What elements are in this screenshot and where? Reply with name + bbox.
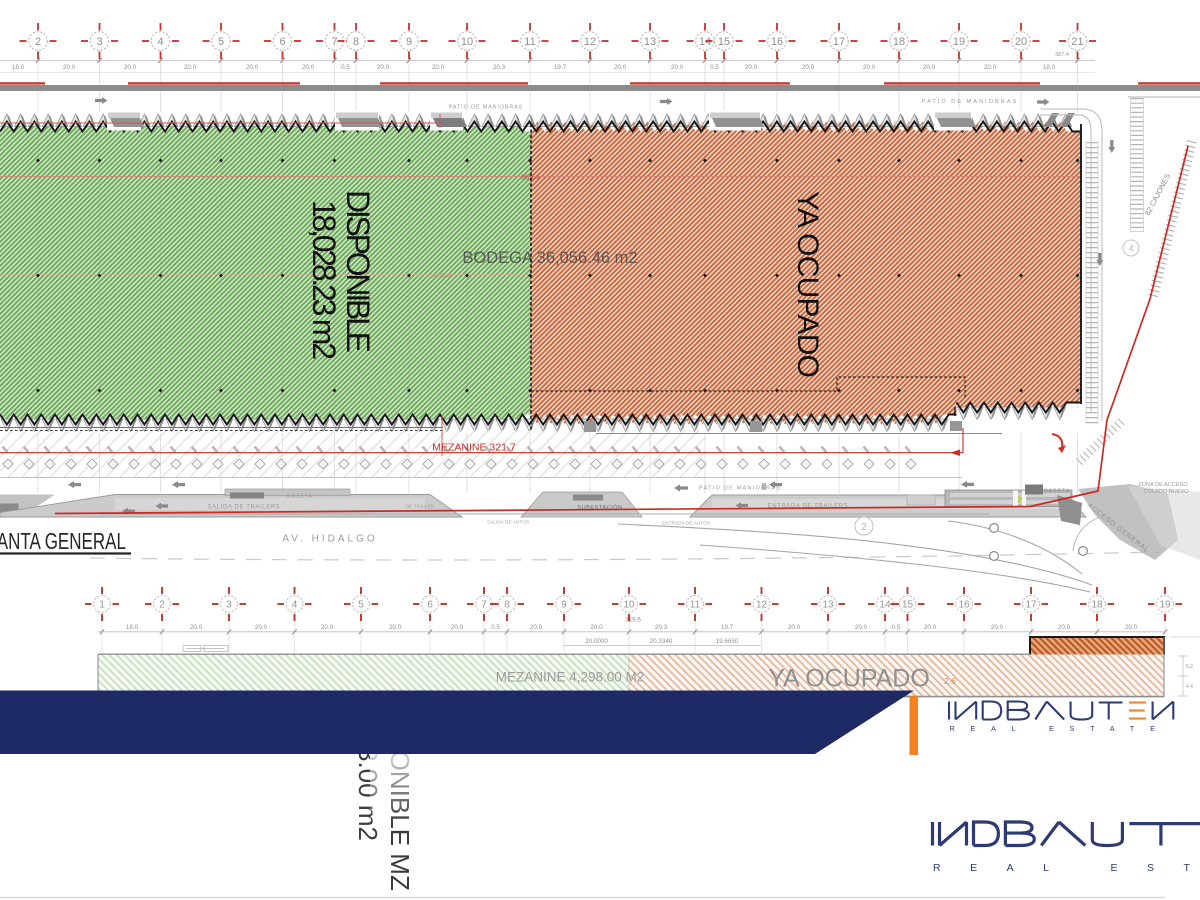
svg-text:20.0: 20.0 xyxy=(1058,624,1071,631)
svg-text:PATIO DE MANIOBRAS: PATIO DE MANIOBRAS xyxy=(699,486,781,492)
svg-text:16: 16 xyxy=(771,36,783,48)
svg-text:0.5: 0.5 xyxy=(491,624,500,631)
svg-text:20.0: 20.0 xyxy=(530,624,543,631)
svg-text:SALIDA DE AUTOS: SALIDA DE AUTOS xyxy=(487,520,529,526)
svg-text:MEZANINE 321.7: MEZANINE 321.7 xyxy=(432,442,516,454)
svg-text:3: 3 xyxy=(226,600,232,611)
svg-text:GASETA: GASETA xyxy=(1044,489,1071,495)
svg-text:GASETA: GASETA xyxy=(287,494,313,500)
svg-text:365.4: 365.4 xyxy=(521,173,540,182)
svg-text:19.7: 19.7 xyxy=(554,64,567,71)
svg-text:20.3: 20.3 xyxy=(493,64,506,71)
svg-text:3: 3 xyxy=(96,36,102,48)
svg-text:20.3340: 20.3340 xyxy=(650,638,673,645)
svg-text:15: 15 xyxy=(718,36,730,48)
svg-text:2.6: 2.6 xyxy=(944,676,956,686)
svg-text:SALIDA DE TRAILERS: SALIDA DE TRAILERS xyxy=(208,505,281,511)
svg-text:19.7: 19.7 xyxy=(721,624,734,631)
svg-text:4: 4 xyxy=(1128,244,1133,254)
svg-text:20.0: 20.0 xyxy=(924,624,937,631)
svg-text:14: 14 xyxy=(879,600,891,611)
svg-text:20.0: 20.0 xyxy=(246,64,259,71)
svg-text:20.0: 20.0 xyxy=(745,64,758,71)
svg-text:13: 13 xyxy=(644,36,656,48)
svg-text:20.0: 20.0 xyxy=(671,64,684,71)
svg-text:PLANTA GENERAL: PLANTA GENERAL xyxy=(0,528,126,554)
svg-text:18,028.23 m2: 18,028.23 m2 xyxy=(306,200,342,360)
svg-text:20.0: 20.0 xyxy=(1125,624,1138,631)
svg-text:20.0: 20.0 xyxy=(923,64,936,71)
svg-text:319.6: 319.6 xyxy=(625,617,641,624)
svg-text:COLADO NUEVO: COLADO NUEVO xyxy=(1143,489,1189,495)
svg-text:19: 19 xyxy=(953,36,965,48)
svg-text:20.0: 20.0 xyxy=(184,64,197,71)
svg-text:PATIO DE MANIOBRAS: PATIO DE MANIOBRAS xyxy=(922,99,1018,105)
svg-text:21: 21 xyxy=(1071,36,1083,48)
svg-text:11: 11 xyxy=(524,36,535,48)
svg-text:20: 20 xyxy=(1015,36,1027,48)
svg-text:20.0: 20.0 xyxy=(984,64,997,71)
svg-text:387.4: 387.4 xyxy=(1055,52,1069,58)
svg-text:20.0: 20.0 xyxy=(451,624,464,631)
svg-text:7: 7 xyxy=(481,600,487,611)
svg-text:20.0: 20.0 xyxy=(124,64,137,71)
svg-text:20.0: 20.0 xyxy=(614,64,627,71)
svg-text:PATIO DE MANIOBRAS: PATIO DE MANIOBRAS xyxy=(449,105,523,111)
svg-text:YA OCUPADO: YA OCUPADO xyxy=(768,665,930,693)
svg-text:16: 16 xyxy=(958,600,970,611)
svg-text:BODEGA 36,056.46 m2: BODEGA 36,056.46 m2 xyxy=(462,249,637,267)
svg-text:8: 8 xyxy=(504,600,510,611)
svg-text:11: 11 xyxy=(690,600,701,611)
svg-text:9: 9 xyxy=(561,600,567,611)
svg-text:DE TRAILER: DE TRAILER xyxy=(405,505,435,511)
svg-text:5: 5 xyxy=(218,36,224,48)
svg-text:19: 19 xyxy=(1159,600,1171,611)
svg-text:6: 6 xyxy=(279,36,285,48)
svg-text:4: 4 xyxy=(157,36,163,48)
svg-text:7: 7 xyxy=(331,36,337,48)
svg-text:12: 12 xyxy=(584,36,596,48)
svg-text:18: 18 xyxy=(1091,600,1103,611)
svg-text:20.0: 20.0 xyxy=(788,624,801,631)
svg-text:20.0: 20.0 xyxy=(255,624,268,631)
svg-text:18.0: 18.0 xyxy=(126,624,139,631)
svg-text:18: 18 xyxy=(893,36,905,48)
svg-text:REAL ESTATE: REAL ESTATE xyxy=(950,724,1171,733)
svg-text:4: 4 xyxy=(292,600,298,611)
svg-text:8: 8 xyxy=(353,36,359,48)
svg-text:20.0: 20.0 xyxy=(855,624,868,631)
svg-text:20.3: 20.3 xyxy=(655,624,668,631)
svg-text:19.6650: 19.6650 xyxy=(716,638,739,645)
svg-text:ENTRADA DE AUTOS: ENTRADA DE AUTOS xyxy=(662,521,710,527)
svg-text:20.0: 20.0 xyxy=(63,64,76,71)
svg-text:20.0: 20.0 xyxy=(863,64,876,71)
svg-text:20.0: 20.0 xyxy=(190,624,203,631)
svg-text:5: 5 xyxy=(358,600,364,611)
svg-text:17: 17 xyxy=(1025,600,1037,611)
svg-text:AV. HIDALGO: AV. HIDALGO xyxy=(282,534,377,545)
svg-text:MEZANINE 4,298.00 M2: MEZANINE 4,298.00 M2 xyxy=(496,670,645,685)
svg-text:0.5: 0.5 xyxy=(892,624,901,631)
svg-text:20.0: 20.0 xyxy=(321,624,334,631)
svg-text:17: 17 xyxy=(833,36,845,48)
svg-text:0.5: 0.5 xyxy=(341,64,350,71)
svg-text:18.0: 18.0 xyxy=(12,64,25,71)
svg-text:20.0: 20.0 xyxy=(302,64,315,71)
svg-text:166.8: 166.8 xyxy=(433,271,452,280)
svg-text:4.4: 4.4 xyxy=(1186,684,1193,690)
svg-text:20.0: 20.0 xyxy=(802,64,815,71)
svg-text:13: 13 xyxy=(822,600,834,611)
svg-text:20.0: 20.0 xyxy=(432,64,445,71)
svg-text:20.0: 20.0 xyxy=(377,64,390,71)
svg-text:10: 10 xyxy=(461,36,473,48)
svg-text:20.0: 20.0 xyxy=(991,624,1004,631)
svg-text:2: 2 xyxy=(159,600,165,611)
svg-text:10: 10 xyxy=(623,600,635,611)
svg-text:6: 6 xyxy=(427,600,433,611)
svg-text:2: 2 xyxy=(861,522,867,533)
svg-text:2: 2 xyxy=(35,36,41,48)
svg-text:15: 15 xyxy=(902,600,914,611)
svg-text:12: 12 xyxy=(756,600,768,611)
svg-text:20.0: 20.0 xyxy=(389,624,402,631)
svg-text:YA OCUPADO: YA OCUPADO xyxy=(791,191,824,378)
svg-text:20.0000: 20.0000 xyxy=(585,638,608,645)
svg-text:DISPONIBLE: DISPONIBLE xyxy=(340,190,376,353)
svg-text:ZONA DE ACCESO: ZONA DE ACCESO xyxy=(1138,482,1188,488)
svg-text:0.5: 0.5 xyxy=(710,64,719,71)
svg-text:9: 9 xyxy=(406,36,412,48)
svg-text:1: 1 xyxy=(99,600,105,611)
svg-text:REAL ESTAT: REAL ESTAT xyxy=(933,862,1200,874)
svg-text:18.0: 18.0 xyxy=(1043,64,1056,71)
svg-text:20.0: 20.0 xyxy=(590,624,603,631)
svg-text:5.2: 5.2 xyxy=(1186,664,1193,670)
